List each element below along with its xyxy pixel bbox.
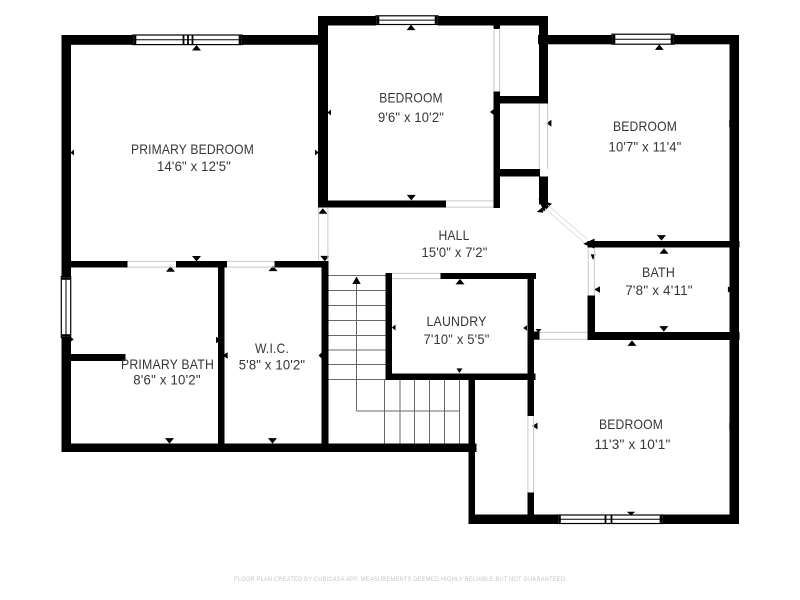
- svg-text:HALL: HALL: [439, 227, 470, 243]
- svg-text:7'8" x 4'11": 7'8" x 4'11": [625, 282, 693, 298]
- svg-text:5'8" x 10'2": 5'8" x 10'2": [239, 356, 306, 372]
- svg-text:11'3" x 10'1": 11'3" x 10'1": [595, 436, 671, 452]
- svg-text:14'6" x 12'5": 14'6" x 12'5": [157, 158, 231, 174]
- svg-text:LAUNDRY: LAUNDRY: [427, 313, 487, 329]
- svg-text:BEDROOM: BEDROOM: [613, 118, 677, 134]
- svg-text:8'6" x 10'2": 8'6" x 10'2": [133, 372, 201, 388]
- svg-text:BEDROOM: BEDROOM: [599, 416, 663, 432]
- svg-text:15'0" x 7'2": 15'0" x 7'2": [422, 244, 488, 260]
- svg-text:10'7" x 11'4": 10'7" x 11'4": [609, 139, 682, 155]
- svg-text:PRIMARY BEDROOM: PRIMARY BEDROOM: [131, 141, 254, 157]
- svg-text:BEDROOM: BEDROOM: [379, 90, 443, 106]
- svg-text:PRIMARY BATH: PRIMARY BATH: [121, 356, 214, 372]
- svg-text:9'6" x 10'2": 9'6" x 10'2": [378, 109, 444, 125]
- svg-text:W.I.C.: W.I.C.: [255, 340, 289, 356]
- svg-text:7'10" x 5'5": 7'10" x 5'5": [424, 331, 490, 347]
- svg-text:FLOOR PLAN CREATED BY CUBICASA: FLOOR PLAN CREATED BY CUBICASA APP. MEAS…: [234, 576, 567, 583]
- svg-text:BATH: BATH: [642, 264, 675, 280]
